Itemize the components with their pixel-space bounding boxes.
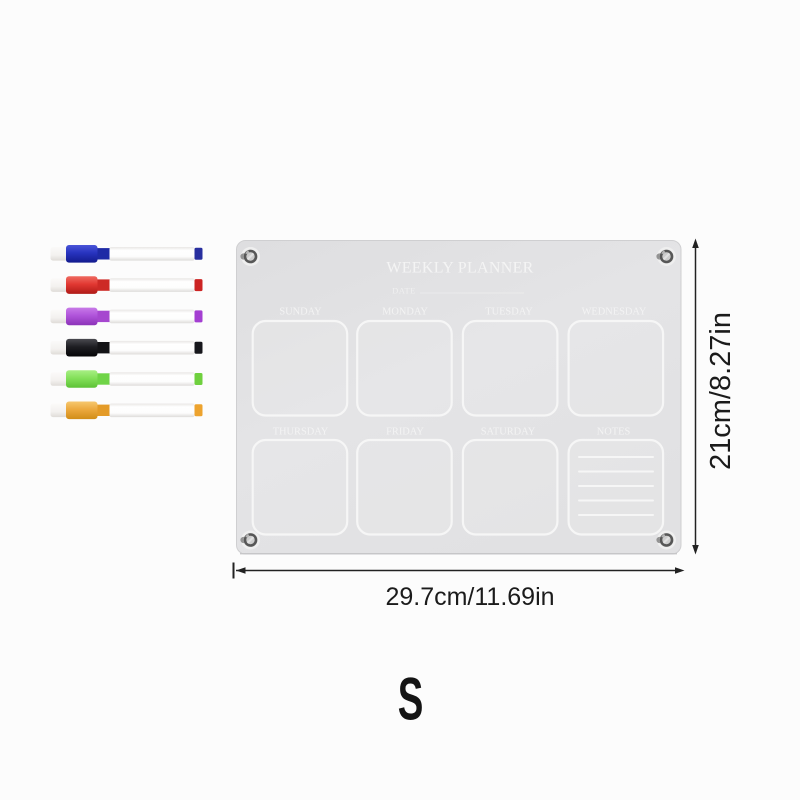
svg-text:SATURDAY: SATURDAY [481,427,536,438]
svg-text:NOTES: NOTES [597,427,631,438]
svg-text:WEDNESDAY: WEDNESDAY [582,307,647,318]
svg-text:29.7cm/11.69in: 29.7cm/11.69in [385,583,554,611]
svg-text:FRIDAY: FRIDAY [386,427,424,438]
svg-text:MONDAY: MONDAY [382,307,428,318]
svg-text:TUESDAY: TUESDAY [485,307,533,318]
svg-text:WEEKLY PLANNER: WEEKLY PLANNER [386,260,533,277]
svg-text:DATE: DATE [392,286,416,296]
svg-text:S: S [398,665,424,733]
svg-text:21cm/8.27in: 21cm/8.27in [705,312,737,470]
svg-text:THURSDAY: THURSDAY [273,427,329,438]
svg-text:SUNDAY: SUNDAY [279,307,322,318]
